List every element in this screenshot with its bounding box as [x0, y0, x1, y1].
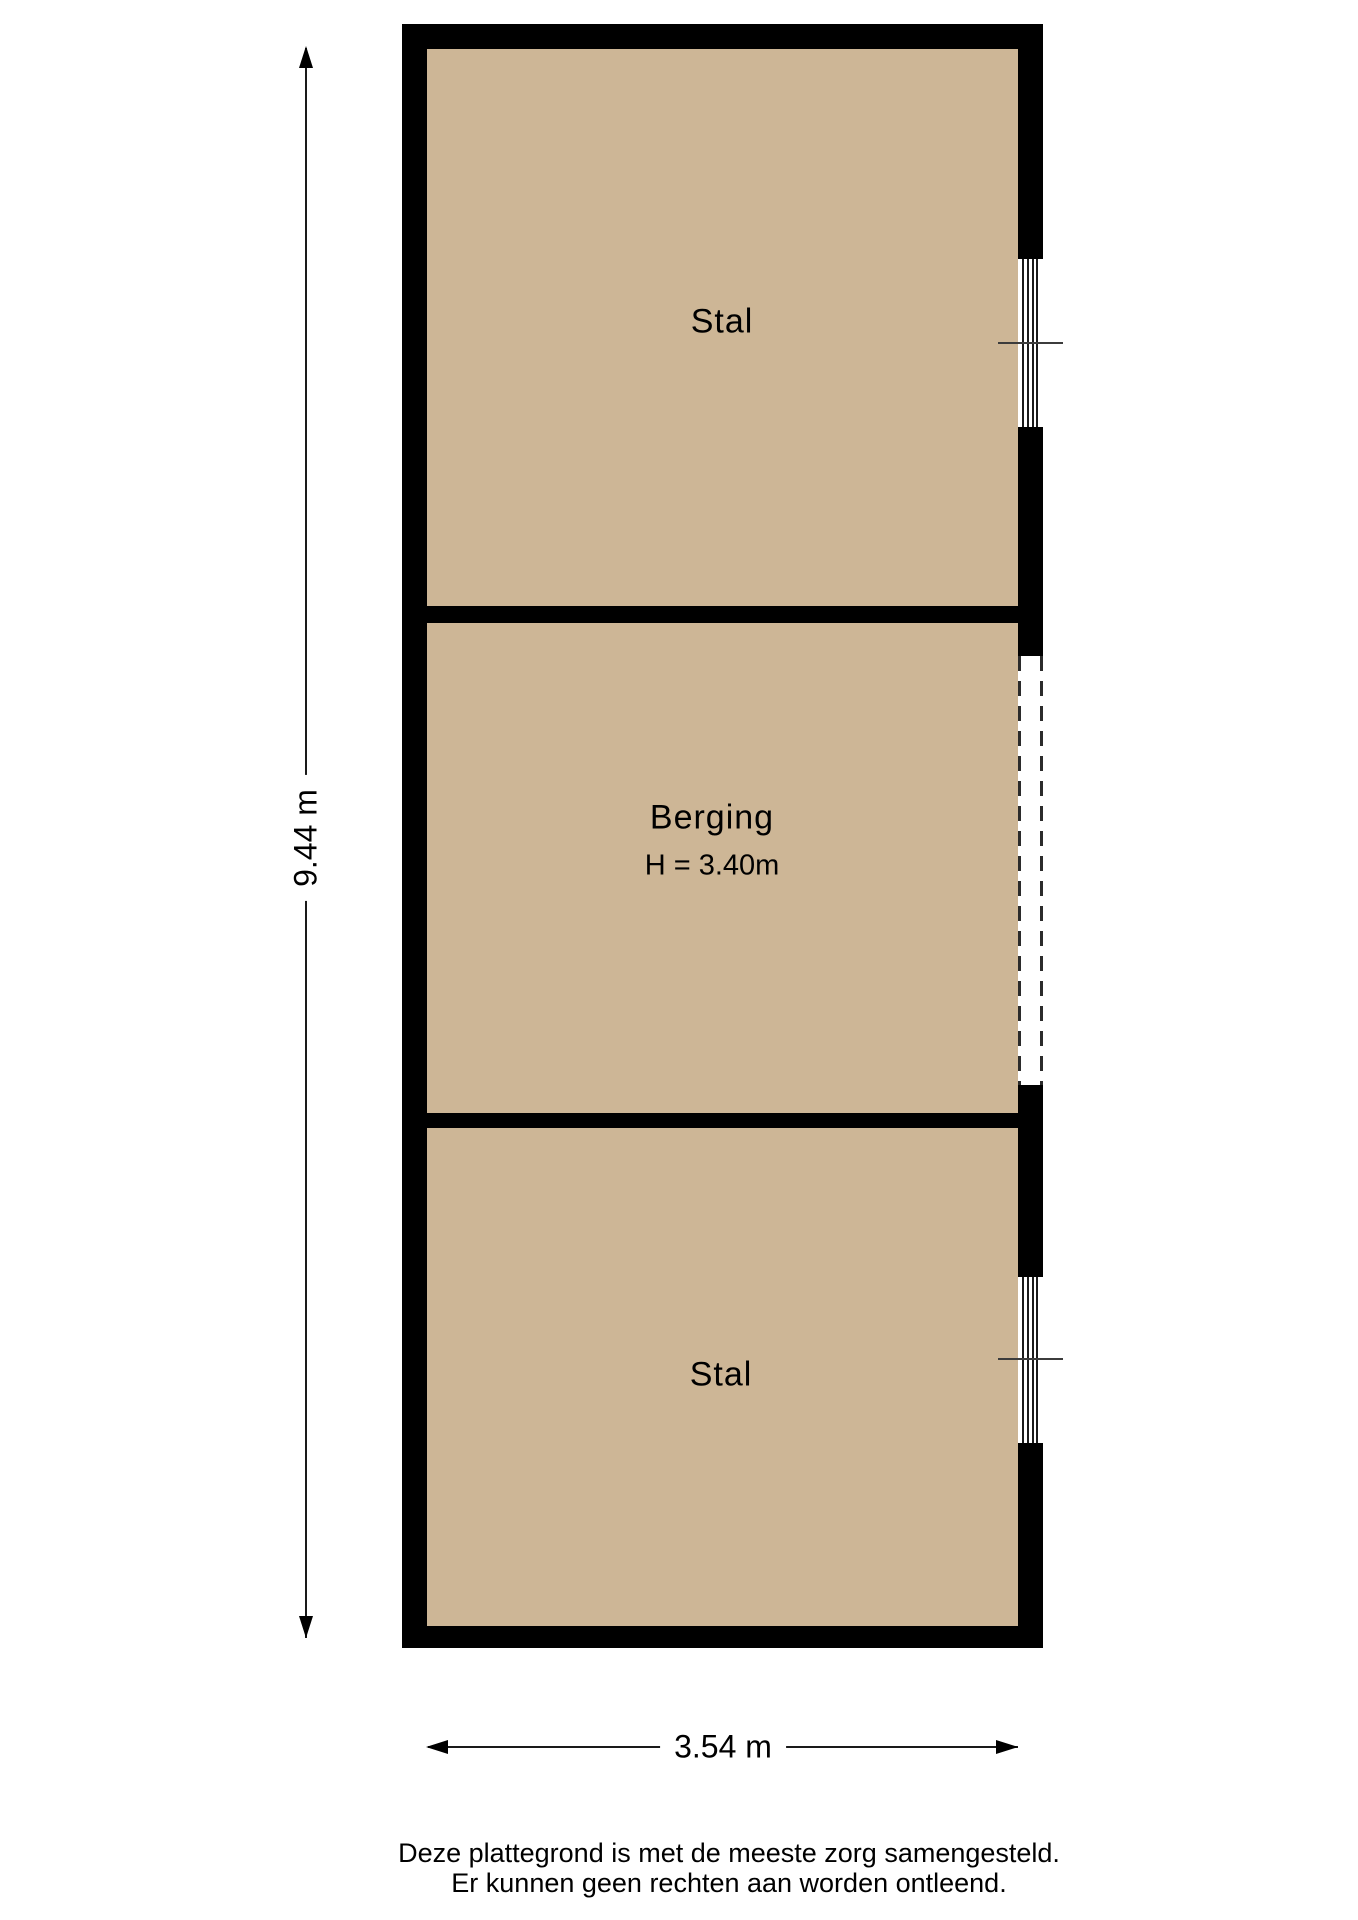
dimension-arrow-right-icon	[996, 1740, 1018, 1754]
dashed-line	[1018, 656, 1021, 1085]
window-glazing-line	[1022, 1277, 1024, 1443]
room-label-berging: Berging	[650, 799, 774, 838]
disclaimer-line-1: Deze plattegrond is met de meeste zorg s…	[398, 1838, 1060, 1868]
disclaimer: Deze plattegrond is met de meeste zorg s…	[398, 1838, 1060, 1898]
floor-plan-canvas: Stal Berging H = 3.40m Stal 9.44 m 3.54 …	[0, 0, 1358, 1920]
opening-berging-dashed	[1018, 656, 1043, 1085]
dimension-arrow-left-icon	[426, 1740, 448, 1754]
dimension-arrow-up-icon	[299, 46, 313, 68]
window-sill-tick-bottom	[998, 1358, 1063, 1360]
window-glazing-line	[1027, 1277, 1029, 1443]
room-label-stal-top: Stal	[691, 303, 754, 342]
room-label-stal-bottom: Stal	[690, 1356, 753, 1395]
window-sill-tick-top	[998, 342, 1063, 344]
horizontal-dimension-label: 3.54 m	[660, 1727, 786, 1768]
dimension-arrow-down-icon	[299, 1616, 313, 1638]
room-height-label-berging: H = 3.40m	[645, 850, 780, 883]
window-bottom	[1018, 1277, 1043, 1443]
window-glazing-line	[1036, 1277, 1038, 1443]
dashed-line	[1040, 656, 1043, 1085]
window-glazing-line	[1032, 1277, 1034, 1443]
disclaimer-line-2: Er kunnen geen rechten aan worden ontlee…	[398, 1868, 1060, 1898]
vertical-dimension-label: 9.44 m	[284, 775, 329, 901]
